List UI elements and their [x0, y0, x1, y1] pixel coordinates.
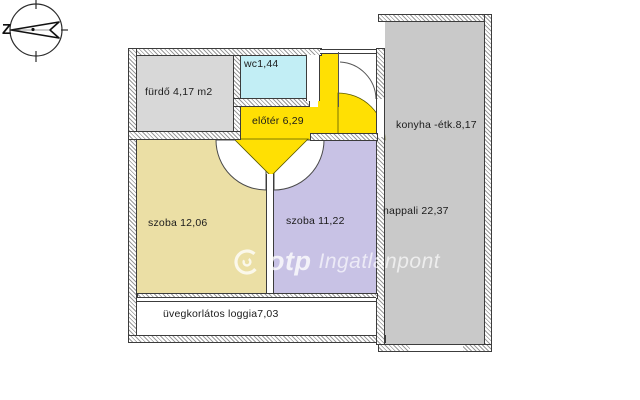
label-bathroom: fürdő 4,17 m2 — [145, 86, 212, 98]
wall-niche — [306, 55, 320, 101]
wall-column-left — [376, 48, 385, 345]
label-hallway: előtér 6,29 — [252, 115, 304, 127]
window-column-bottom — [410, 344, 463, 352]
label-wc: wc1,44 — [244, 58, 278, 70]
compass-icon — [10, 0, 68, 62]
wall-wc-bottom — [233, 98, 310, 107]
vestibule-divider-line — [338, 52, 339, 107]
label-kitchen-dining: konyha -étk.8,17 — [396, 119, 477, 131]
label-room-1: szoba 12,06 — [148, 217, 207, 229]
room-kitchen-living — [385, 22, 484, 344]
label-loggia: üvegkorlátos loggia7,03 — [163, 308, 279, 320]
compass-north-label: Z — [2, 21, 11, 38]
vestibule-door-arc — [340, 62, 376, 99]
wall-column-top — [378, 14, 492, 22]
wall-column-right — [484, 14, 492, 352]
floor-plan: Z fürdő 4,17 m2 wc1,44 előtér 6,29 konyh… — [0, 0, 640, 400]
wall-top-left — [128, 48, 322, 56]
wall-room-divider — [266, 174, 274, 293]
label-living-room: nappali 22,37 — [383, 205, 449, 217]
label-room-2: szoba 11,22 — [286, 215, 345, 227]
wall-bathroom-bottom — [128, 131, 241, 140]
wall-outer-left — [128, 48, 137, 343]
wall-loggia-bottom — [128, 335, 386, 343]
wall-room2-top — [310, 133, 378, 141]
hallway-strip — [318, 52, 338, 107]
loggia-glass-rail — [137, 297, 376, 302]
wall-top-opening — [320, 49, 378, 54]
door-gap-kitchen — [376, 99, 385, 137]
